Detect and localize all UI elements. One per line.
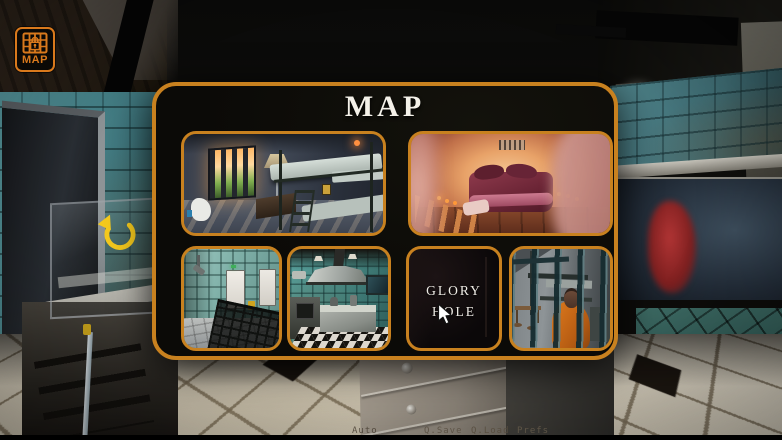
oven <box>296 303 314 319</box>
island-top <box>320 305 376 312</box>
pot <box>350 295 357 306</box>
bunk-post <box>279 150 282 230</box>
drawer-divider <box>361 365 515 397</box>
game-scene: MAP MAP <box>0 0 782 440</box>
map-tile-kitchen[interactable] <box>287 246 391 351</box>
warning-sign <box>322 184 331 195</box>
ceiling-light-dot <box>354 140 360 146</box>
panel-title: MAP <box>156 90 614 124</box>
map-tile-cell-prisoner[interactable] <box>509 246 613 351</box>
prison-window-lock-icon <box>22 32 48 54</box>
map-tile-bedroom-peephole[interactable] <box>408 131 613 236</box>
peephole-blur-right <box>552 131 613 236</box>
toilet <box>191 198 211 221</box>
kitchen-window <box>366 275 391 295</box>
drawer-handle <box>401 362 412 373</box>
glory-hole-label: GLORY HOLE <box>409 281 499 323</box>
letterbox-bar <box>0 435 782 440</box>
wall-vent <box>499 140 525 150</box>
picture-red-shape <box>648 201 696 293</box>
peephole-blur-left <box>408 131 439 236</box>
background-picture <box>614 177 782 307</box>
pot <box>330 297 338 306</box>
map-tile-shower-room[interactable] <box>181 246 282 351</box>
hood-underside <box>306 282 370 285</box>
undo-arrow-icon[interactable] <box>96 206 138 260</box>
drawer-handle <box>406 404 416 414</box>
map-tile-cell-bunkbeds[interactable] <box>181 131 386 236</box>
bunk-post <box>370 142 373 232</box>
cup <box>187 210 192 217</box>
map-button-label: MAP <box>22 55 48 66</box>
pole-cap <box>83 324 91 335</box>
map-button[interactable]: MAP <box>15 27 55 72</box>
ac-unit <box>292 271 306 279</box>
door <box>259 269 276 306</box>
exit-light <box>231 265 236 268</box>
mesh-railing <box>205 299 282 351</box>
map-tile-glory-hole[interactable]: GLORY HOLE <box>406 246 502 351</box>
map-panel: MAP <box>152 82 618 360</box>
barred-window <box>208 145 256 200</box>
